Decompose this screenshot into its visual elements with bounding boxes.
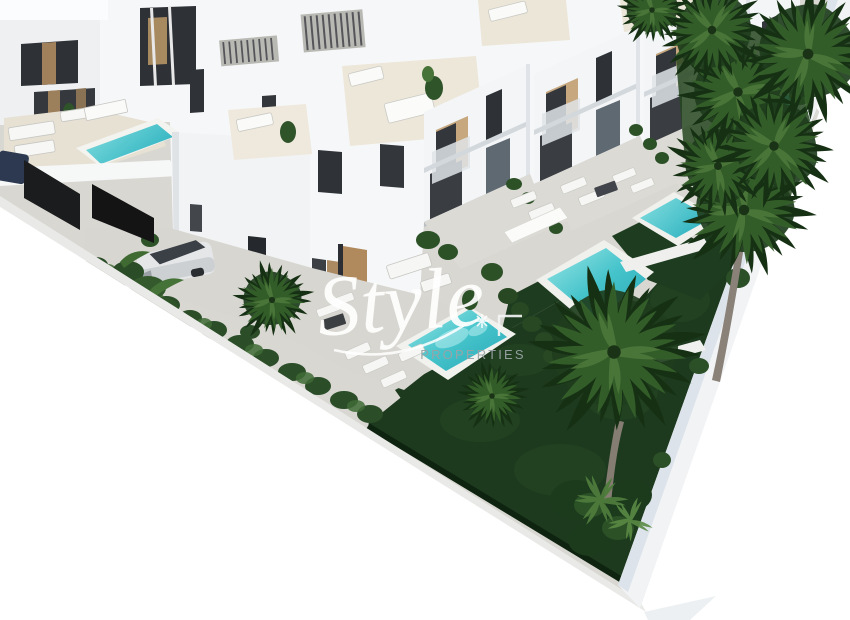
svg-text:PROPERTIES: PROPERTIES [420,347,526,362]
svg-text:Style: Style [314,247,487,354]
